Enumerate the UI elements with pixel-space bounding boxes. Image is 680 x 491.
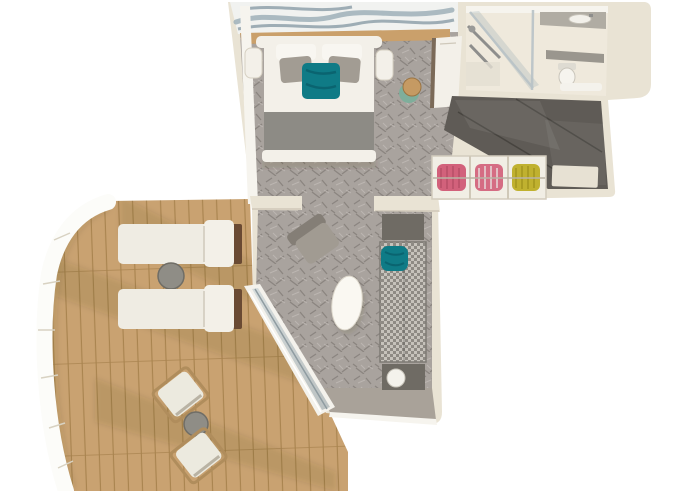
bathroom-top-wall: [466, 6, 608, 13]
teal-accent-pillow: [302, 63, 340, 99]
nightstand-left: [245, 48, 262, 78]
foot-blanket: [264, 112, 374, 154]
bedroom-living-wall-left: [250, 196, 302, 210]
bedroom: [230, 2, 462, 214]
wardrobe-closet: [432, 156, 546, 199]
nightstand-right: [376, 50, 393, 80]
side-table-top: [382, 214, 424, 240]
table-lamp: [387, 369, 405, 387]
checkered-sofa: [380, 242, 426, 362]
bathroom: [466, 6, 608, 96]
floor-mat: [552, 165, 599, 188]
stool: [403, 78, 421, 96]
bedroom-living-wall-right: [374, 196, 440, 212]
floor-plan-canvas: [0, 0, 680, 491]
floor-plan-image: [0, 0, 680, 491]
toilet: [558, 63, 576, 86]
bath-mat: [560, 83, 602, 91]
round-side-table-loungers: [158, 263, 184, 289]
double-bed: [256, 36, 382, 168]
sun-lounger-2: [118, 285, 242, 332]
sun-lounger-1: [118, 220, 242, 267]
teal-throw: [381, 246, 408, 271]
